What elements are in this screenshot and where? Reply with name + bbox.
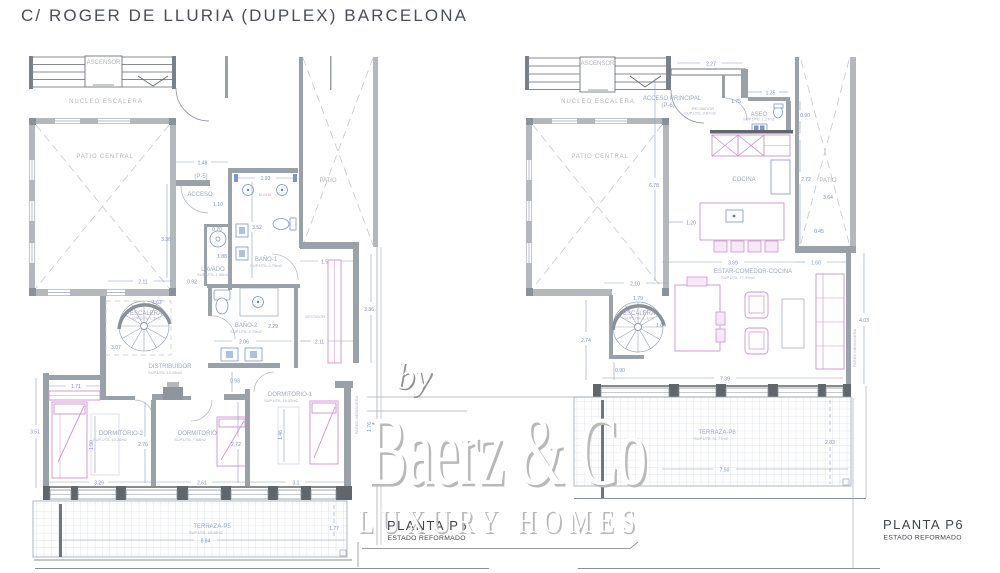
svg-text:1.35: 1.35: [766, 91, 776, 97]
svg-text:1.77: 1.77: [329, 526, 339, 532]
svg-text:COCINA: COCINA: [732, 177, 755, 183]
svg-text:ACCESO PRINCIPAL: ACCESO PRINCIPAL: [643, 96, 702, 102]
svg-text:0.45: 0.45: [814, 229, 824, 235]
svg-text:7.50: 7.50: [720, 468, 730, 474]
svg-text:1.60: 1.60: [811, 261, 821, 267]
svg-text:SUP.UTIL 4.70m2: SUP.UTIL 4.70m2: [230, 329, 263, 334]
svg-text:0.92: 0.92: [187, 280, 197, 286]
svg-text:PLANTA P6: PLANTA P6: [883, 517, 964, 532]
svg-text:PATIO: PATIO: [819, 178, 836, 184]
svg-text:8.84: 8.84: [201, 539, 211, 545]
svg-text:2.61: 2.61: [197, 481, 207, 487]
svg-text:SUP.UTIL 1.3m2: SUP.UTIL 1.3m2: [624, 316, 654, 321]
svg-text:3.51: 3.51: [30, 430, 40, 436]
svg-text:1.20: 1.20: [686, 221, 696, 227]
svg-text:1.88: 1.88: [217, 254, 227, 260]
svg-text:6.78: 6.78: [649, 183, 659, 189]
svg-text:3.36: 3.36: [364, 307, 374, 313]
svg-text:SUP.UTIL 7.58m2: SUP.UTIL 7.58m2: [174, 437, 207, 442]
svg-text:ASCENSOR: ASCENSOR: [87, 60, 121, 66]
svg-text:0.93: 0.93: [230, 379, 240, 385]
svg-text:SUP.UTIL 31.77m2: SUP.UTIL 31.77m2: [694, 436, 729, 441]
svg-text:3.69: 3.69: [728, 261, 738, 267]
svg-text:2.72: 2.72: [801, 177, 811, 183]
svg-text:NUCLEO ESCALERA: NUCLEO ESCALERA: [561, 99, 635, 105]
svg-text:2.29: 2.29: [268, 324, 278, 330]
svg-text:2.06: 2.06: [239, 340, 249, 346]
svg-text:2.74: 2.74: [581, 338, 591, 344]
svg-text:0.70: 0.70: [212, 227, 222, 233]
svg-text:3.1: 3.1: [293, 481, 300, 487]
svg-text:Baerz & Co: Baerz & Co: [368, 397, 647, 506]
svg-text:SUP.UTIL 19.52m2: SUP.UTIL 19.52m2: [264, 398, 299, 403]
svg-text:2.72: 2.72: [231, 442, 241, 448]
svg-text:SUP.UTIL 4.76m2: SUP.UTIL 4.76m2: [250, 263, 283, 268]
svg-text:2.11: 2.11: [315, 340, 325, 346]
svg-text:(P-5): (P-5): [194, 174, 207, 180]
svg-text:SUP.UTIL 1.46m2: SUP.UTIL 1.46m2: [197, 272, 230, 277]
svg-text:PARED MEDIANERA: PARED MEDIANERA: [852, 328, 857, 367]
svg-text:SUP.UTIL 3.87m2: SUP.UTIL 3.87m2: [684, 111, 717, 116]
svg-text:3.64: 3.64: [823, 195, 833, 201]
svg-text:1.62: 1.62: [152, 300, 162, 306]
svg-text:1.64: 1.64: [656, 323, 666, 329]
svg-text:3.36: 3.36: [161, 237, 171, 243]
svg-text:3.52: 3.52: [252, 225, 262, 231]
svg-text:PATIO: PATIO: [319, 178, 336, 184]
svg-text:4.03: 4.03: [859, 318, 869, 324]
svg-text:VESTIDOR: VESTIDOR: [305, 314, 326, 319]
svg-text:NUCLEO ESCALERA: NUCLEO ESCALERA: [69, 99, 143, 105]
svg-text:DUCHA: DUCHA: [259, 193, 272, 197]
svg-text:7.39: 7.39: [720, 377, 730, 383]
svg-text:SUP.UTIL 1.3m2: SUP.UTIL 1.3m2: [131, 316, 161, 321]
svg-text:SUP.UTIL 1.27m2: SUP.UTIL 1.27m2: [743, 117, 776, 122]
svg-text:2.10: 2.10: [630, 282, 640, 288]
svg-text:BAÑO-2: BAÑO-2: [235, 322, 258, 329]
svg-text:SUP.UTIL 10.26m2: SUP.UTIL 10.26m2: [93, 437, 128, 442]
svg-text:ESTADO REFORMADO: ESTADO REFORMADO: [884, 535, 962, 542]
svg-text:1.71: 1.71: [71, 384, 81, 390]
svg-text:3.29: 3.29: [94, 481, 104, 487]
svg-text:2.27: 2.27: [706, 62, 716, 68]
svg-text:PARED MEDIANERA: PARED MEDIANERA: [354, 395, 359, 434]
svg-text:SUP.UTIL 18.48m2: SUP.UTIL 18.48m2: [189, 530, 224, 535]
svg-text:0.90: 0.90: [615, 368, 625, 374]
svg-text:1.48: 1.48: [198, 161, 208, 167]
svg-text:LUXURY HOMES: LUXURY HOMES: [358, 503, 642, 540]
svg-text:1.93: 1.93: [261, 176, 271, 182]
svg-text:2.83: 2.83: [825, 440, 835, 446]
svg-text:by: by: [396, 357, 432, 398]
svg-text:1.75: 1.75: [731, 99, 741, 105]
svg-text:C/ ROGER DE LLURIA (DUPLEX) B: C/ ROGER DE LLURIA (DUPLEX) BARCELONA: [21, 6, 468, 25]
svg-text:PATIO CENTRAL: PATIO CENTRAL: [571, 154, 628, 160]
svg-text:1.46: 1.46: [278, 430, 284, 440]
svg-text:ASCENSOR: ASCENSOR: [581, 61, 615, 67]
svg-text:1.79: 1.79: [633, 296, 643, 302]
svg-text:ACCESO: ACCESO: [187, 192, 213, 198]
svg-text:2.11: 2.11: [138, 280, 148, 286]
svg-text:SUP.UTIL 77.99m2: SUP.UTIL 77.99m2: [721, 275, 756, 280]
svg-text:(P-6): (P-6): [661, 103, 674, 109]
svg-text:1.10: 1.10: [213, 202, 223, 208]
svg-text:3.07: 3.07: [111, 345, 121, 351]
svg-text:SUP.UTIL 14.28m2: SUP.UTIL 14.28m2: [148, 370, 183, 375]
svg-text:0.90: 0.90: [800, 113, 810, 119]
svg-text:BAÑO-1: BAÑO-1: [255, 256, 278, 263]
svg-text:PATIO CENTRAL: PATIO CENTRAL: [76, 154, 133, 160]
svg-text:2.76: 2.76: [138, 442, 148, 448]
